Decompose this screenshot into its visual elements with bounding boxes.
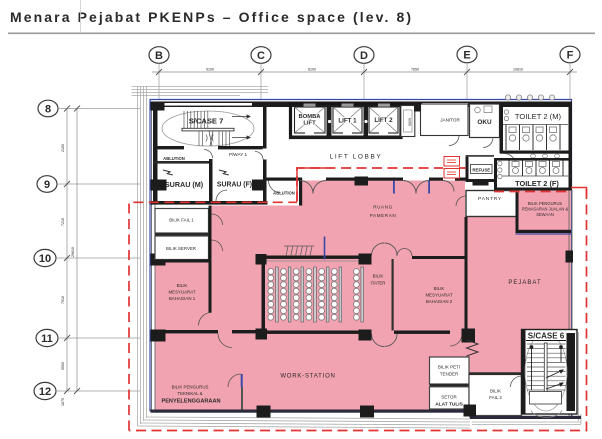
- svg-text:7650: 7650: [411, 68, 419, 72]
- svg-text:BOMBA: BOMBA: [299, 114, 322, 120]
- svg-text:OKU: OKU: [477, 119, 492, 126]
- svg-text:C: C: [257, 50, 265, 62]
- svg-text:11: 11: [41, 333, 53, 345]
- svg-text:7010: 7010: [61, 296, 65, 304]
- svg-text:): ): [206, 135, 208, 142]
- svg-text:PAMERAN: PAMERAN: [370, 213, 397, 218]
- svg-text:LIFT: LIFT: [303, 121, 316, 127]
- svg-text:SIGN: SIGN: [408, 117, 412, 126]
- svg-text:REFUSE: REFUSE: [472, 168, 490, 173]
- svg-text:12: 12: [39, 386, 51, 398]
- svg-text:5500: 5500: [61, 362, 65, 370]
- svg-text:10: 10: [39, 253, 51, 265]
- svg-text:D: D: [360, 50, 368, 62]
- svg-text:BAHAGIAN 1: BAHAGIAN 1: [169, 296, 196, 301]
- svg-text:TENDER: TENDER: [440, 372, 459, 377]
- svg-text:B: B: [155, 50, 163, 62]
- svg-text:7210: 7210: [61, 218, 65, 226]
- svg-text:ALAT TULIS: ALAT TULIS: [435, 402, 463, 408]
- svg-text:BILIK PENGURUS: BILIK PENGURUS: [528, 201, 563, 206]
- svg-text:WORK-STATION: WORK-STATION: [280, 374, 335, 380]
- svg-text:8100: 8100: [308, 68, 316, 72]
- svg-text:9: 9: [44, 179, 50, 191]
- svg-text:PEMASARAN JUALAN &: PEMASARAN JUALAN &: [522, 207, 569, 212]
- svg-text:JANITOR: JANITOR: [440, 118, 460, 123]
- svg-text:LIFT 2: LIFT 2: [374, 117, 393, 124]
- svg-text:TOILET 2 (F): TOILET 2 (F): [515, 179, 559, 188]
- svg-text:BILIK: BILIK: [490, 389, 501, 394]
- svg-text:TEKNIKAL &: TEKNIKAL &: [177, 391, 202, 396]
- svg-text:ABLUTION: ABLUTION: [273, 191, 295, 196]
- svg-text:BILIK: BILIK: [177, 283, 188, 288]
- svg-text:10810: 10810: [513, 68, 523, 72]
- svg-text:RUANG: RUANG: [373, 205, 393, 210]
- svg-text:P/WAY 1: P/WAY 1: [229, 152, 247, 157]
- svg-text:MESYUARAT: MESYUARAT: [169, 290, 196, 295]
- svg-text:SURAU (M): SURAU (M): [165, 180, 204, 189]
- svg-text:S/CASE 6: S/CASE 6: [528, 332, 565, 341]
- svg-text:29610: 29610: [71, 247, 75, 257]
- svg-text:ITATER: ITATER: [371, 281, 386, 286]
- svg-text:PENYELENGGARAAN: PENYELENGGARAAN: [161, 399, 220, 405]
- svg-text:LIFT LOBBY: LIFT LOBBY: [330, 154, 383, 161]
- svg-text:SURAU (F): SURAU (F): [217, 182, 252, 189]
- svg-text:9100: 9100: [206, 68, 214, 72]
- svg-text:Menara Pejabat PKENPs – Office: Menara Pejabat PKENPs – Office space (le…: [10, 9, 413, 25]
- svg-text:SEWAAN: SEWAAN: [536, 212, 554, 217]
- svg-text:BAHAGIAN 2: BAHAGIAN 2: [426, 299, 453, 304]
- svg-text:1675: 1675: [61, 398, 65, 406]
- svg-text:PEJABAT: PEJABAT: [508, 280, 541, 286]
- svg-text:2100: 2100: [61, 144, 65, 152]
- svg-text:BILIK FAIL 1: BILIK FAIL 1: [169, 218, 194, 223]
- svg-text:MESYUARAT: MESYUARAT: [426, 293, 453, 298]
- svg-text:PANTRY: PANTRY: [478, 196, 502, 202]
- svg-text:BILIK: BILIK: [373, 274, 384, 279]
- svg-text:BILIK PETI: BILIK PETI: [438, 365, 460, 370]
- svg-text:S/CASE 7: S/CASE 7: [189, 117, 224, 126]
- svg-text:FAIL 2: FAIL 2: [489, 395, 502, 400]
- svg-text:F: F: [567, 50, 574, 62]
- svg-text:SETOR: SETOR: [441, 395, 457, 400]
- svg-text:8: 8: [45, 104, 51, 116]
- svg-text:BILIK: BILIK: [434, 286, 445, 291]
- svg-text:BILIK PENGURUS: BILIK PENGURUS: [172, 385, 209, 390]
- svg-text:LIFT 1: LIFT 1: [338, 118, 357, 125]
- svg-text:TOILET 2 (M): TOILET 2 (M): [515, 112, 562, 121]
- svg-text:E: E: [463, 50, 470, 62]
- svg-text:ABLUTION: ABLUTION: [163, 156, 185, 161]
- svg-text:BILIK SERVER: BILIK SERVER: [166, 246, 196, 251]
